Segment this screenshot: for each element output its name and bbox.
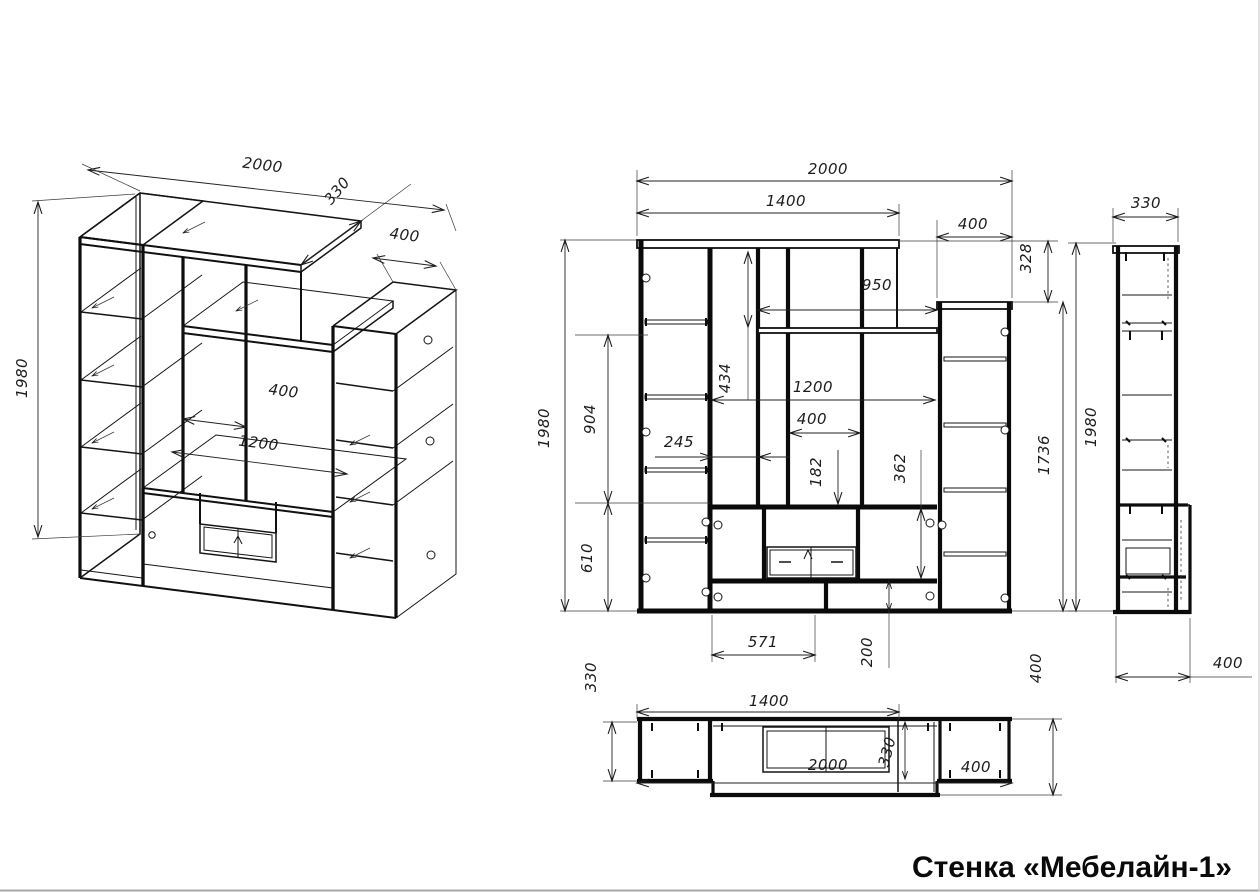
dim-plan-right-cab-width: 400 (961, 758, 991, 776)
page-border (0, 0, 1260, 892)
plan-view: 330 1400 2000 330 400 400 (582, 653, 1062, 795)
dim-front-shelf-width: 950 (862, 276, 892, 294)
dim-iso-right-width: 400 (389, 224, 421, 246)
dim-iso-width: 2000 (242, 154, 284, 177)
dim-front-right-cab-height: 1736 (1035, 435, 1053, 475)
side-structure (1113, 246, 1191, 614)
dim-front-mid-section: 904 (581, 404, 599, 434)
dim-iso-height: 1980 (13, 358, 31, 398)
blueprint-canvas: 2000 330 400 1980 400 1200 (0, 0, 1260, 892)
side-dimensions: 330 1980 400 (1068, 194, 1252, 683)
dim-front-right-top-offset: 328 (1017, 243, 1035, 273)
dim-front-tv-left-width: 571 (748, 633, 778, 651)
dim-front-plinth: 200 (858, 637, 876, 667)
dim-front-top-panel: 1400 (766, 192, 806, 210)
dim-plan-bottom-depth: 400 (1027, 653, 1045, 683)
side-view: 330 1980 400 (1068, 194, 1252, 683)
front-dimensions: 2000 1400 400 328 1736 950 434 (535, 160, 1075, 668)
dim-front-bottom-section: 610 (578, 543, 596, 573)
dim-front-upper-opening: 434 (716, 363, 734, 393)
dim-side-height: 1980 (1082, 407, 1100, 447)
iso-view: 2000 330 400 1980 400 1200 (13, 154, 456, 618)
dim-side-depth: 330 (1131, 194, 1161, 212)
iso-pin-arrows (92, 222, 370, 558)
dim-plan-mid-depth: 330 (875, 735, 900, 769)
dim-front-right-cab-width: 400 (958, 215, 988, 233)
blueprint-page: 2000 330 400 1980 400 1200 (0, 0, 1260, 892)
dim-iso-center-opening: 400 (268, 380, 300, 402)
dim-front-tv-section: 362 (891, 453, 909, 483)
dim-front-tv-top-gap: 182 (807, 457, 825, 487)
dim-plan-top-panel: 1400 (749, 692, 789, 710)
dim-front-center-opening: 400 (797, 410, 827, 428)
dim-plan-total-width: 2000 (808, 756, 848, 774)
dim-front-left-opening: 245 (664, 433, 694, 451)
dim-front-total-width: 2000 (808, 160, 848, 178)
dim-iso-niche-width: 1200 (238, 432, 280, 455)
drawing-title: Стенка «Мебелайн-1» (912, 851, 1232, 884)
dim-plan-depth: 330 (582, 662, 600, 692)
plan-dimensions: 330 1400 2000 330 400 400 (582, 653, 1062, 795)
dim-side-bottom-depth: 400 (1213, 654, 1243, 672)
dim-front-inner-width: 1200 (793, 378, 833, 396)
iso-structure (80, 193, 456, 618)
front-view: 2000 1400 400 328 1736 950 434 (535, 160, 1075, 668)
dim-iso-depth: 330 (321, 173, 354, 208)
dim-front-total-height: 1980 (535, 408, 553, 448)
